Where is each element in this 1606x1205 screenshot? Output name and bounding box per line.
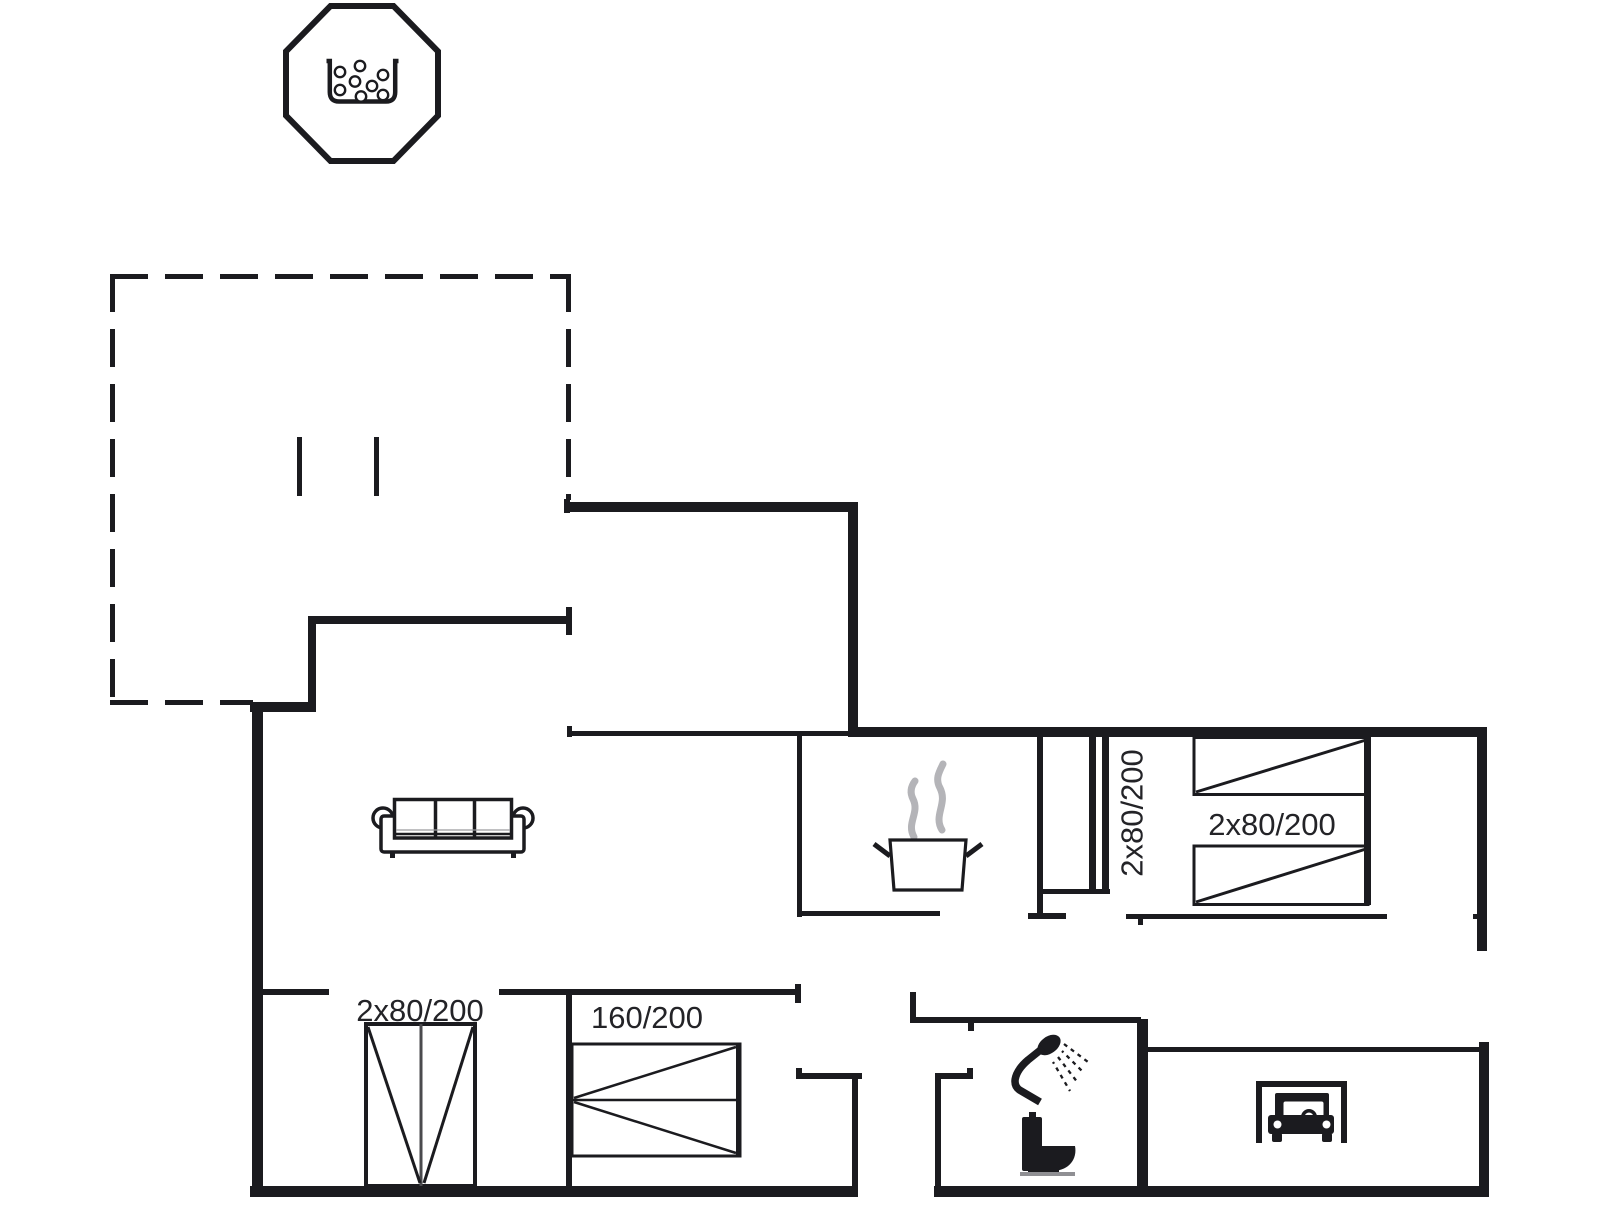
svg-text:160/200: 160/200 [591, 1000, 703, 1035]
svg-text:2x80/200: 2x80/200 [356, 993, 484, 1028]
svg-text:2x80/200: 2x80/200 [1208, 807, 1336, 842]
svg-text:2x80/200: 2x80/200 [1115, 749, 1150, 877]
